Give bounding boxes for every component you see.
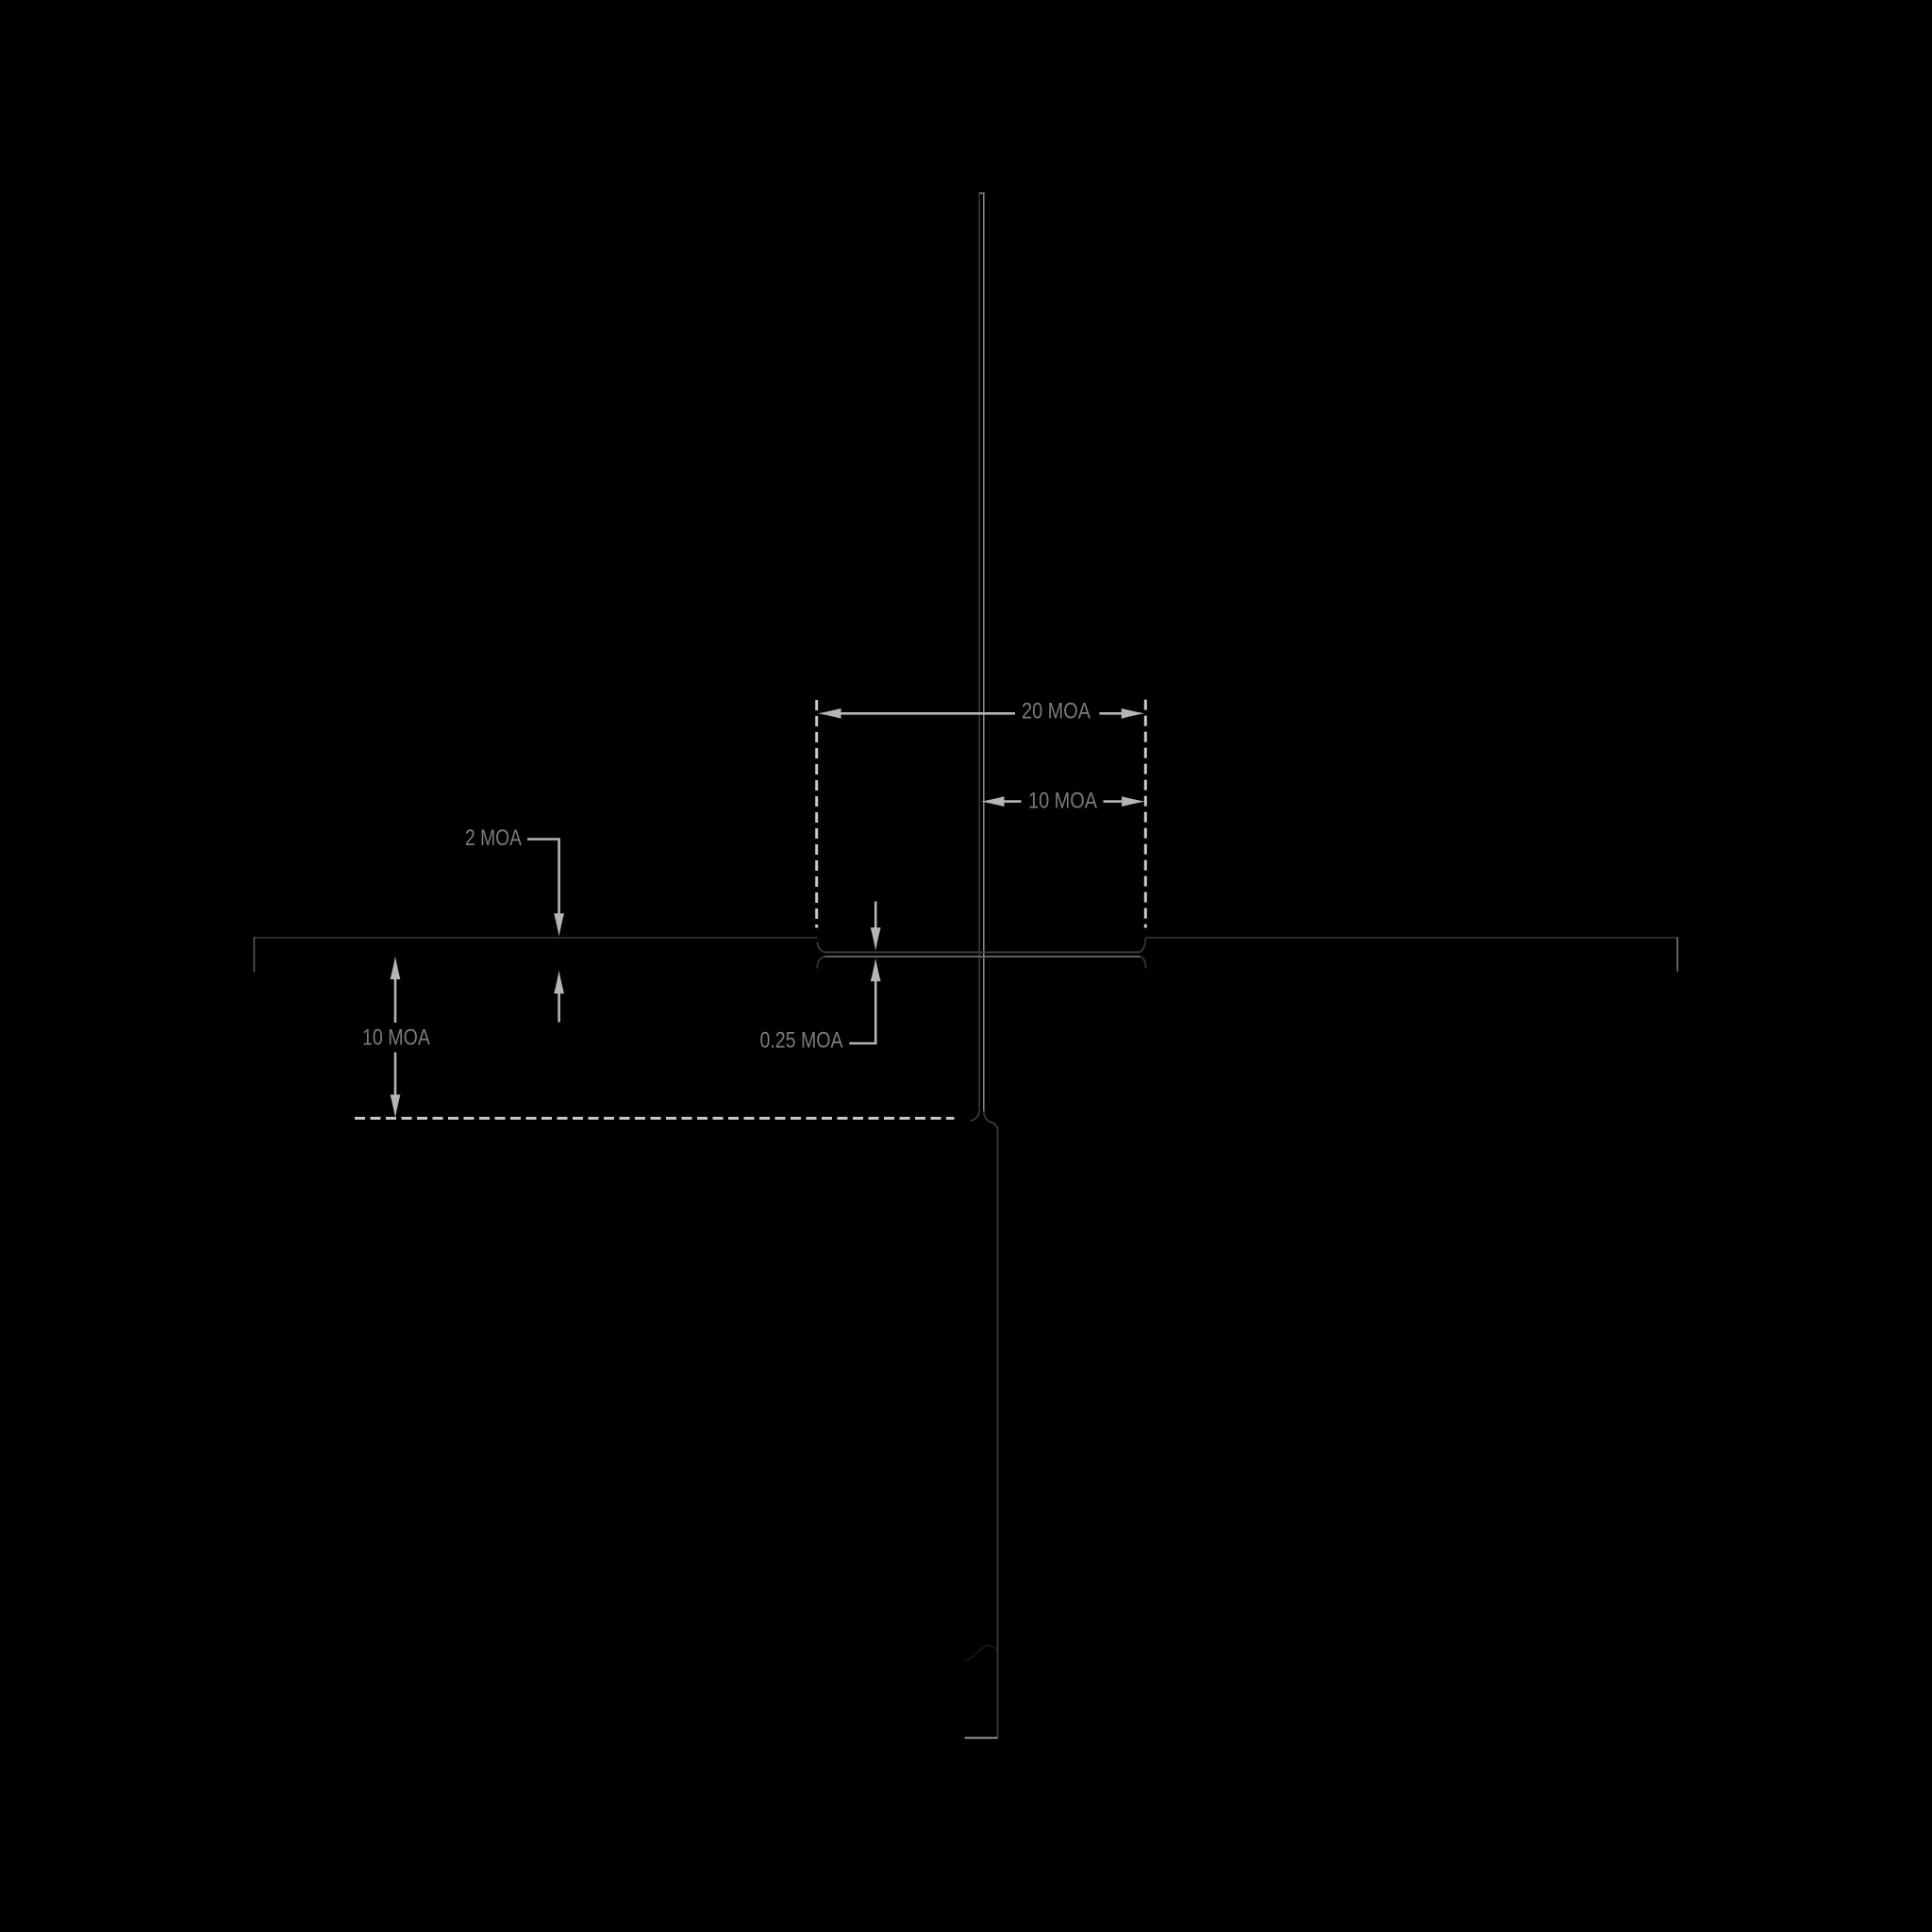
svg-text:20 MOA: 20 MOA: [1022, 699, 1091, 724]
svg-text:10 MOA: 10 MOA: [1028, 789, 1097, 814]
svg-text:10 MOA: 10 MOA: [362, 1025, 430, 1051]
svg-text:2 MOA: 2 MOA: [465, 825, 522, 851]
svg-text:0.25 MOA: 0.25 MOA: [760, 1028, 843, 1054]
